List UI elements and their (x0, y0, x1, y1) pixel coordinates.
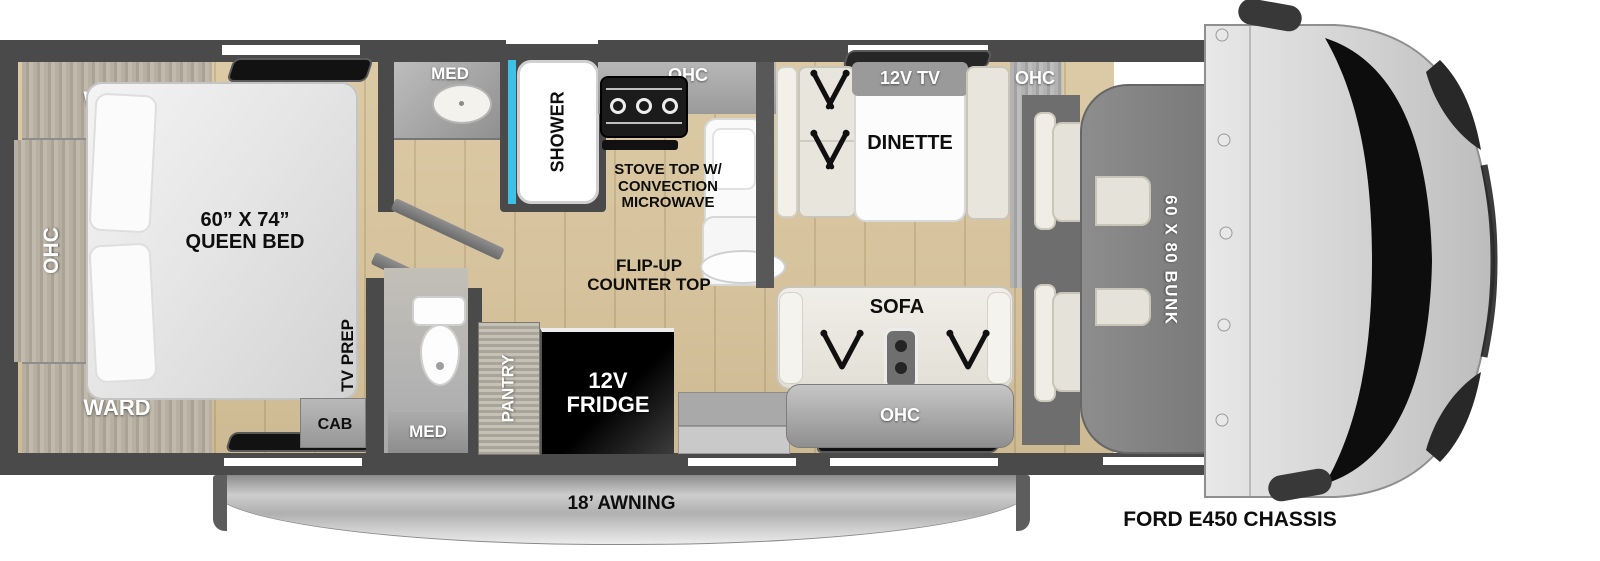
shower-skylight (506, 28, 598, 44)
coach-bottom-wall (0, 453, 1265, 475)
toilet-tank (412, 296, 466, 326)
chassis-caption-box: FORD E450 CHASSIS (1100, 506, 1360, 534)
pantry-cabinet: PANTRY (478, 322, 540, 455)
coach-top-wall (0, 40, 1240, 62)
fridge-label-line1: 12V (588, 369, 627, 393)
cab-front-graphic (1100, 0, 1500, 561)
rv-floorplan-diagram: WARD OHC WARD 60” X 74” QUEEN BED TV PRE… (0, 0, 1600, 561)
sofa-armrest-left (779, 292, 803, 384)
dinette-label-box: DINETTE (856, 130, 964, 156)
rivet-5 (1216, 414, 1228, 426)
awning-label: 18’ AWNING (567, 494, 675, 515)
med-top-box: MED (420, 63, 480, 85)
bedroom-ohc-cabinet: OHC (14, 140, 88, 362)
stove-caption-line1: STOVE TOP W/ (614, 162, 722, 179)
queen-bed-label: 60” X 74” QUEEN BED (150, 203, 340, 259)
dinette-bench-cushion-line (800, 140, 854, 142)
dinette-label: DINETTE (867, 132, 953, 154)
stove-caption-line2: CONVECTION (618, 179, 718, 196)
bedroom-bath-wall (378, 62, 394, 212)
dinette-ohc-box: OHC (1002, 66, 1068, 92)
chassis-caption: FORD E450 CHASSIS (1123, 508, 1337, 531)
cab-label-box: CAB (306, 414, 364, 436)
rivet-4 (1218, 319, 1230, 331)
shower-label: SHOWER (548, 91, 568, 172)
bath-sink-drain (459, 101, 464, 106)
sofa-console (884, 328, 918, 390)
sofa-armrest-right (987, 292, 1011, 384)
tv-prep-label: TV PREP (339, 319, 358, 392)
stove-burner-1 (610, 98, 626, 114)
stove-burner-2 (636, 98, 652, 114)
bedroom-ohc-label: OHC (39, 228, 62, 275)
bed-name-label: QUEEN BED (186, 231, 305, 253)
med-top-label: MED (431, 65, 469, 84)
flip-up-caption: FLIP-UP COUNTER TOP (556, 254, 742, 298)
stove-caption-line3: MICROWAVE (621, 195, 714, 212)
entry-step-lower (678, 426, 790, 454)
awning-label-box: 18’ AWNING (213, 492, 1030, 516)
pantry-label: PANTRY (500, 355, 519, 423)
flip-up-caption-line2: COUNTER TOP (587, 276, 710, 295)
shower-glass-accent (508, 60, 516, 204)
stove-grate-line-1 (606, 88, 682, 90)
wardrobe-bottom-label: WARD (83, 396, 150, 420)
stove-burner-3 (662, 98, 678, 114)
toilet-seat-dot (436, 362, 444, 370)
sofa-label-box: SOFA (852, 294, 942, 320)
fridge: 12V FRIDGE (540, 328, 674, 454)
bottom-wall-window-strip-entry (688, 458, 796, 466)
sofa-cupholder-2 (895, 362, 907, 374)
shower-tray: SHOWER (517, 60, 599, 204)
bottom-wall-window-strip-bedroom (224, 458, 362, 466)
dinette-left-bench-seat (798, 66, 856, 218)
top-wall-window-strip-bedroom (222, 45, 360, 55)
stove-grate-line-2 (606, 122, 682, 124)
bed-pillow-bottom (88, 242, 157, 383)
bedroom-window (226, 58, 374, 82)
bed-size-label: 60” X 74” (201, 209, 290, 231)
dinette-left-wall (756, 62, 774, 288)
med-bottom-box: MED (388, 412, 468, 453)
rivet-2 (1218, 134, 1230, 146)
sofa-label: SOFA (870, 296, 924, 318)
med-bottom-label: MED (409, 423, 447, 442)
stove-caption: STOVE TOP W/ CONVECTION MICROWAVE (588, 156, 748, 218)
dinette-tv-label: 12V TV (880, 69, 940, 89)
rivet-3 (1220, 227, 1232, 239)
sofa-ohc-label: OHC (880, 406, 920, 426)
entry-step-upper (678, 392, 790, 426)
fridge-label-line2: FRIDGE (566, 393, 649, 417)
rivet-1 (1216, 29, 1228, 41)
bottom-wall-window-strip-sofa (830, 458, 998, 466)
dinette-tv-band: 12V TV (852, 62, 968, 96)
bed-pillow-top (88, 92, 157, 233)
flip-up-caption-line1: FLIP-UP (616, 257, 682, 276)
dinette-left-bench-back (776, 66, 798, 218)
cab-label: CAB (318, 416, 353, 434)
stove-counter-edge (602, 140, 678, 150)
sofa-ohc-band: OHC (786, 384, 1014, 448)
sofa-cupholder-1 (895, 340, 907, 352)
dinette-ohc-label: OHC (1015, 69, 1055, 89)
